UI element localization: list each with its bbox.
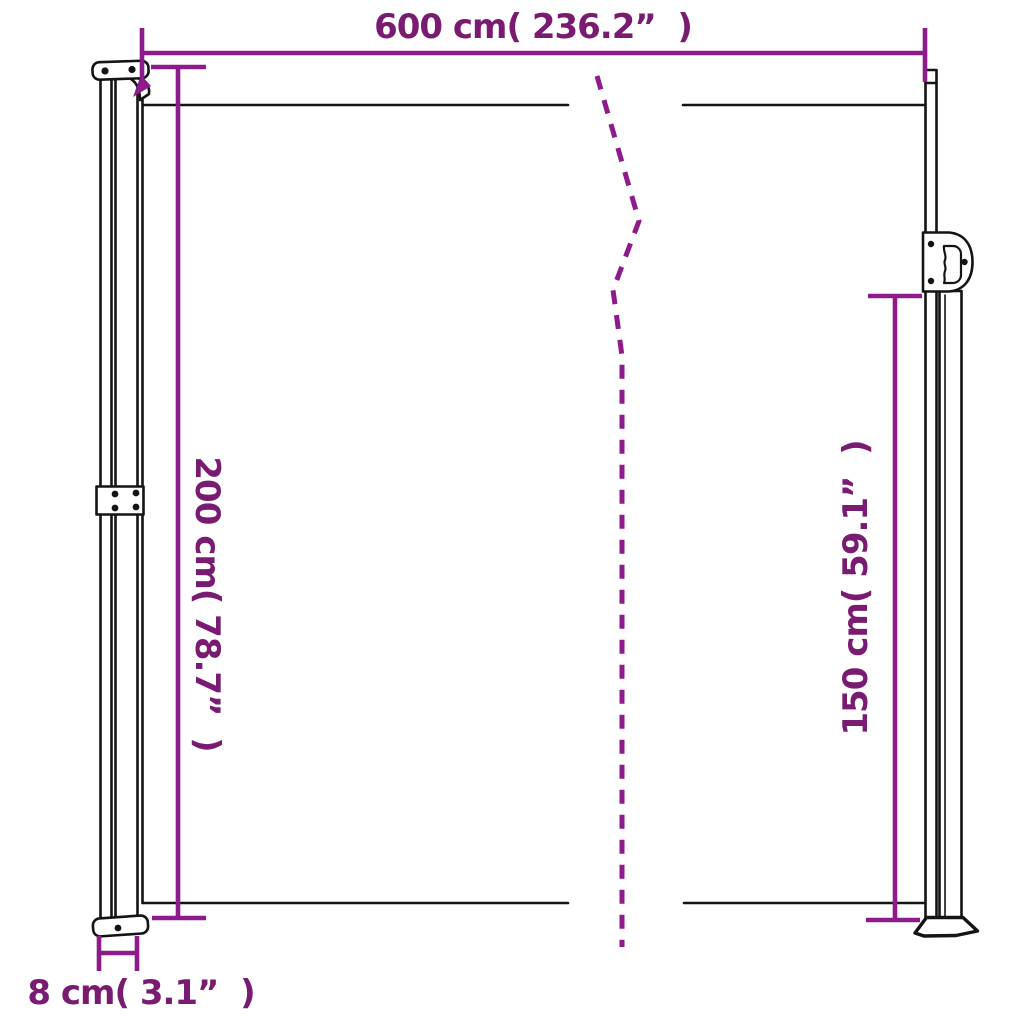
screw-icon [128,66,135,73]
height-left-dimension-label: 200 cm( 78.7” ) [187,456,227,751]
telescopic-tube [940,291,962,922]
pull-bar [926,70,937,930]
product-dimension-diagram: 600 cm( 236.2” ) 200 cm( 78.7” ) 150 cm(… [0,0,1024,1024]
left-cassette-post [92,61,149,937]
post-width-dimension [99,936,137,971]
break-line [597,76,639,947]
width-dimension-label: 600 cm( 236.2” ) [374,7,692,47]
screw-icon [115,925,122,932]
handle-grip-cutout [944,246,961,283]
screw-icon [112,491,119,498]
height-right-dimension-label: 150 cm( 59.1” ) [836,440,876,735]
screw-icon [133,490,140,497]
post-width-dimension-label: 8 cm( 3.1” ) [27,973,254,1013]
fabric-panel [143,98,927,903]
screw-icon [112,505,119,512]
screw-icon [961,259,967,265]
base-plate [915,918,978,937]
screw-icon [928,278,934,284]
screw-icon [101,67,108,74]
right-pole [915,70,978,936]
bottom-cap-screws [115,925,122,932]
screw-icon [133,504,140,511]
screw-icon [928,241,934,247]
